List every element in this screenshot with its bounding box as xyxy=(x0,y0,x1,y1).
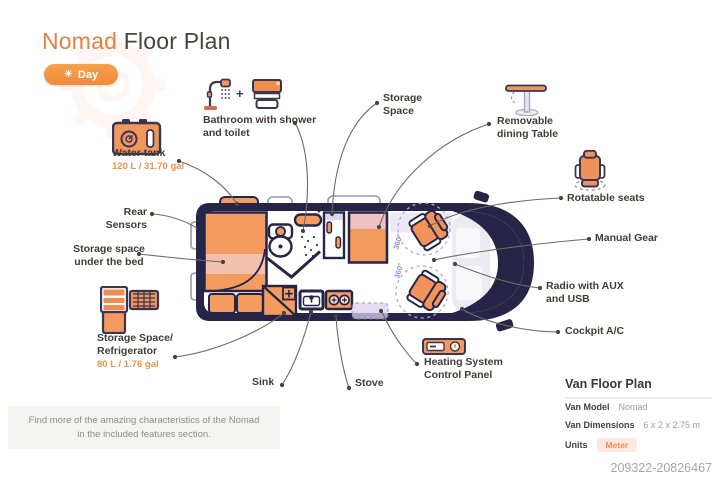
corner-cabinet xyxy=(263,286,296,316)
water-tank-capacity: 120 L / 31.70 gal xyxy=(112,161,212,173)
callout-radio: Radio with AUX and USB xyxy=(546,280,638,306)
callout-stove: Stove xyxy=(355,377,384,390)
van-dimensions-value: 6 x 2 x 2.75 m xyxy=(644,420,701,430)
van-units-label: Units xyxy=(565,440,588,450)
wardrobe-storage xyxy=(324,213,344,259)
van-model-value: Nomad xyxy=(619,402,648,412)
toilet-icon xyxy=(253,80,281,108)
water-tank-label: Water tank xyxy=(112,147,212,160)
units-meter-badge[interactable]: Meter xyxy=(597,438,638,452)
van-dimensions-label: Van Dimensions xyxy=(565,420,635,430)
callout-refrigerator: Storage Space/ Refrigerator 80 L / 1.76 … xyxy=(97,332,202,370)
callout-rear-sensors: Rear Sensors xyxy=(83,206,147,232)
van-dimensions-row: Van Dimensions 6 x 2 x 2.75 m xyxy=(565,420,700,430)
callout-bathroom: Bathroom with shower and toilet xyxy=(203,114,318,140)
refrigerator-icon xyxy=(100,286,162,334)
van-model-label: Van Model xyxy=(565,402,610,412)
callout-manual-gear: Manual Gear xyxy=(595,232,685,245)
callout-heating: Heating System Control Panel xyxy=(424,356,522,382)
callout-dining-table: Removable dining Table xyxy=(497,115,581,141)
rotatable-seat-icon xyxy=(571,150,609,192)
stove-unit xyxy=(326,291,352,309)
callout-rotatable-seats: Rotatable seats xyxy=(567,192,662,205)
bathroom-icons xyxy=(203,78,285,114)
callout-storage-under-bed: Storage space under the bed xyxy=(68,243,150,269)
van-model-row: Van Model Nomad xyxy=(565,402,648,412)
reference-id: 209322-20826467 xyxy=(611,461,713,475)
heating-panel-icon xyxy=(422,338,466,356)
sink-unit xyxy=(300,291,323,309)
callout-sink: Sink xyxy=(252,376,274,389)
dining-table-icon xyxy=(503,84,549,116)
van-units-row: Units Meter xyxy=(565,438,637,452)
floor-plan-page: Nomad Floor Plan ☀ Day xyxy=(0,0,720,480)
callout-storage-space: Storage Space xyxy=(383,92,439,118)
shower-icon xyxy=(204,80,230,111)
features-note-box: Find more of the amazing characteristics… xyxy=(8,406,280,449)
side-mirror-top xyxy=(473,190,490,203)
toilet xyxy=(269,225,292,257)
refrigerator-label: Storage Space/ Refrigerator xyxy=(97,332,202,358)
van-info-title: Van Floor Plan xyxy=(565,377,652,391)
van-info-divider xyxy=(565,397,712,399)
refrigerator-capacity: 80 L / 1.76 gal xyxy=(97,359,202,371)
callout-cockpit-ac: Cockpit A/C xyxy=(565,325,655,338)
bed xyxy=(205,213,267,292)
callout-water-tank: Water tank 120 L / 31.70 gal xyxy=(112,147,212,172)
plus-icon: + xyxy=(236,86,244,102)
features-note-text: Find more of the amazing characteristics… xyxy=(28,414,260,442)
